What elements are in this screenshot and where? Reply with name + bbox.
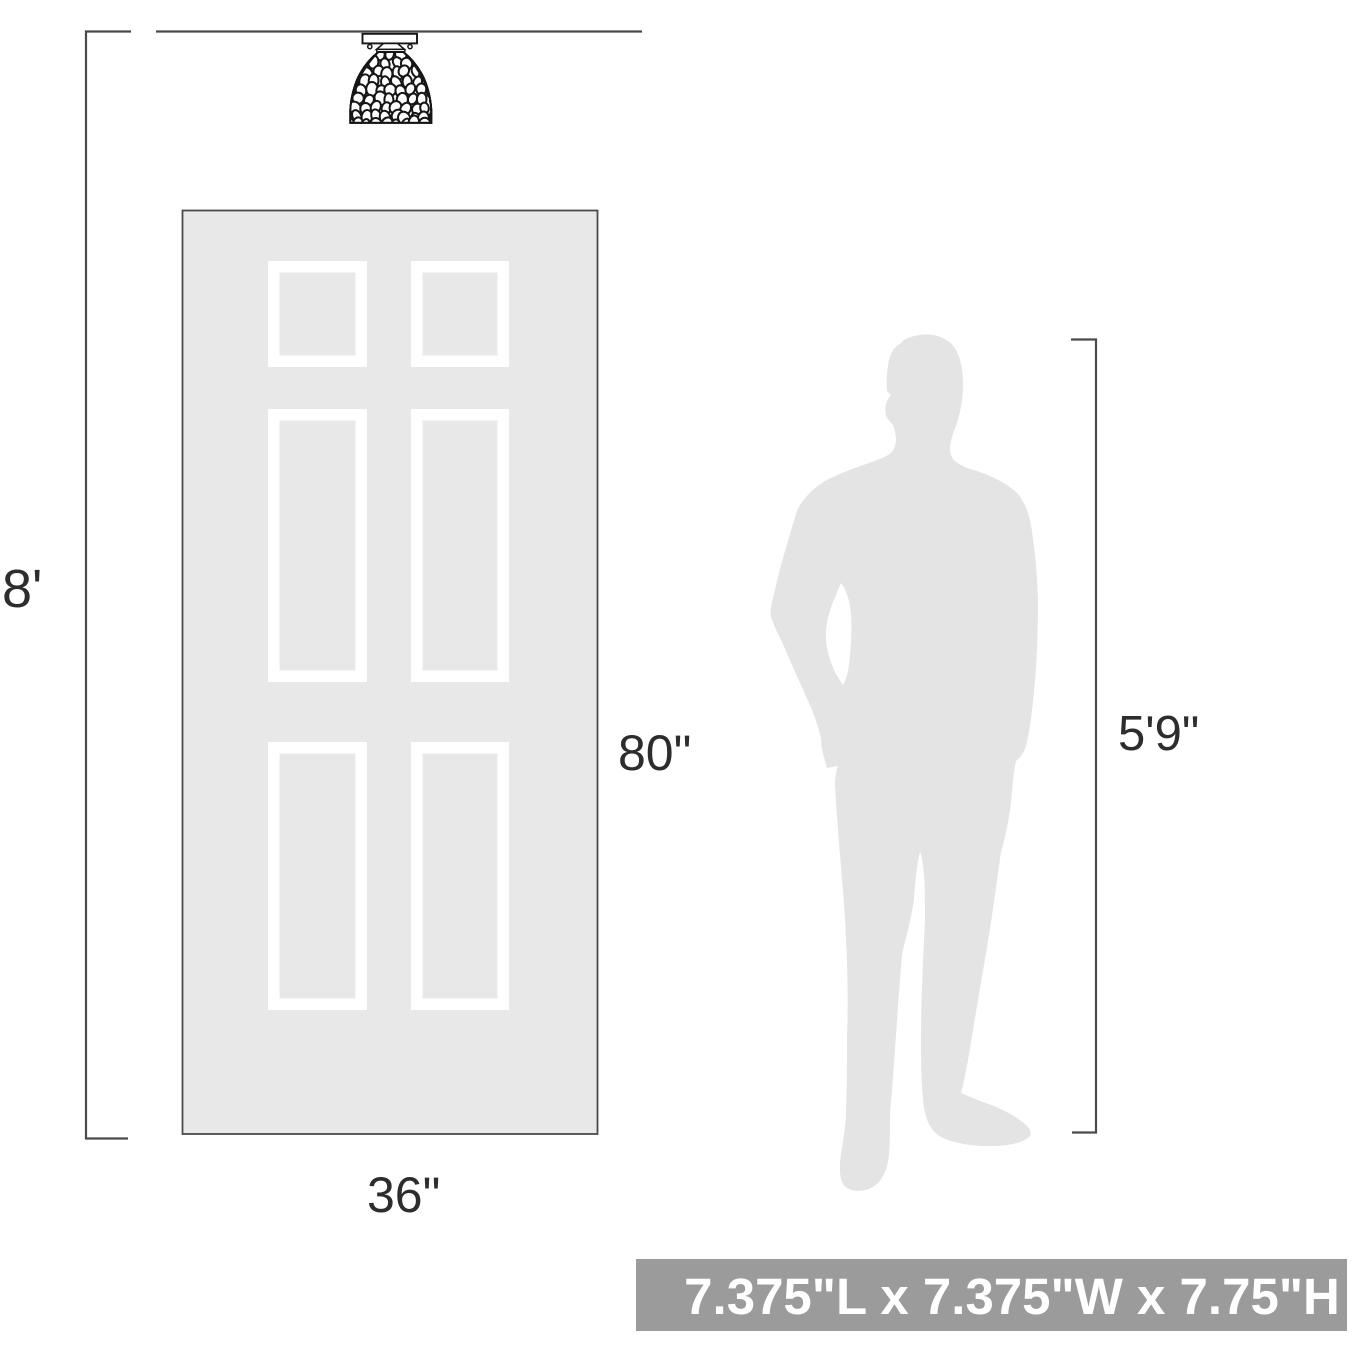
svg-text:7.375"L x 7.375"W x 7.75"H: 7.375"L x 7.375"W x 7.75"H: [684, 1268, 1340, 1325]
svg-text:80": 80": [618, 725, 691, 781]
svg-text:36": 36": [367, 1167, 440, 1223]
svg-text:5'9": 5'9": [1118, 707, 1199, 761]
svg-text:8': 8': [2, 559, 42, 619]
